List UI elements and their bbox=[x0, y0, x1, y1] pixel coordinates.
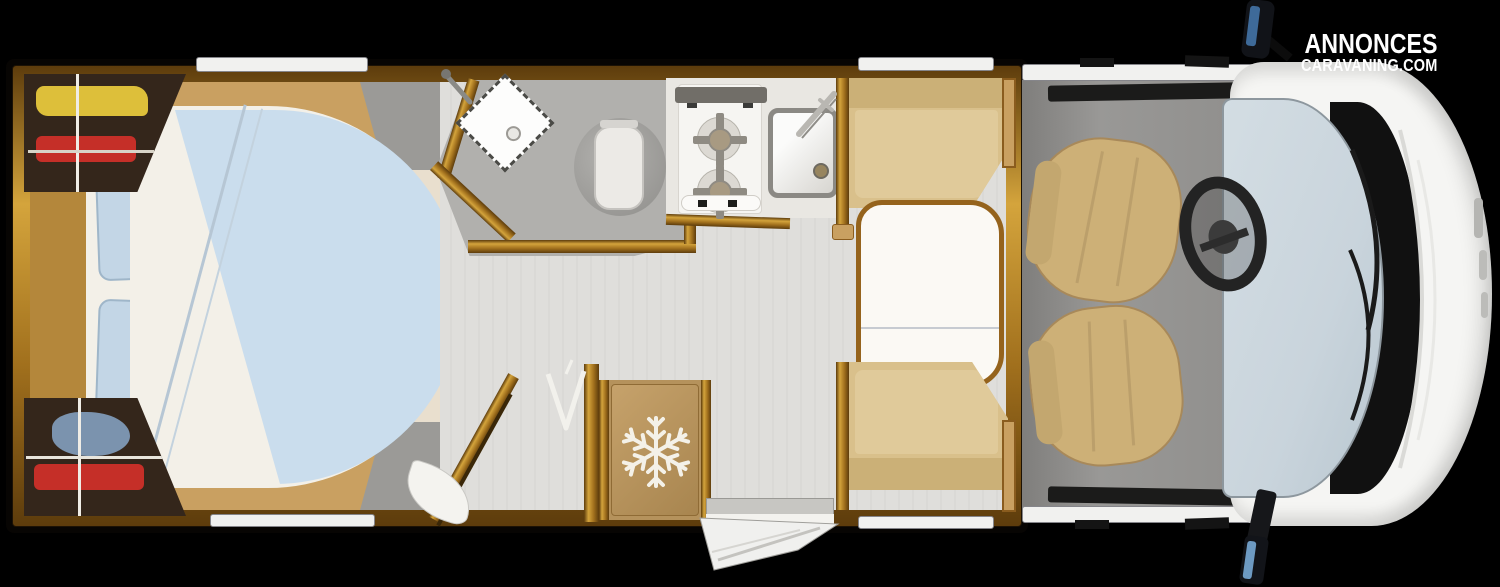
toilet-bowl bbox=[574, 118, 666, 216]
dinette-bench-top bbox=[845, 78, 1008, 208]
fridge-door-panel bbox=[611, 384, 699, 516]
hanging-clothes-yellow bbox=[36, 86, 148, 116]
bench-backrest-bottom bbox=[845, 458, 1008, 490]
window-top-rear bbox=[196, 57, 368, 72]
roof-bracket-bottom-1 bbox=[1075, 520, 1109, 529]
burner-cap bbox=[708, 128, 732, 152]
bench-arm-foot bbox=[832, 224, 854, 240]
side-mirror-bottom bbox=[1236, 486, 1296, 587]
sink-drain bbox=[813, 163, 829, 179]
roof-bracket-top-1 bbox=[1080, 58, 1114, 67]
window-top-dinette bbox=[858, 57, 994, 71]
roof-bracket-bottom-2 bbox=[1185, 517, 1229, 530]
table-extension-seam bbox=[861, 327, 999, 329]
window-bottom-rear bbox=[210, 514, 375, 527]
fridge bbox=[599, 380, 711, 520]
site-watermark-logo: ANNONCES CARAVANING.COM bbox=[1301, 30, 1438, 74]
hanger-bar-2 bbox=[26, 456, 166, 459]
hanger-rail bbox=[76, 74, 79, 192]
dinette-bench-bottom bbox=[845, 362, 1008, 490]
hanging-clothes-blue bbox=[52, 412, 130, 456]
hob-foot-right bbox=[743, 103, 753, 108]
toilet-hinge bbox=[600, 120, 638, 128]
entry-sill bbox=[706, 514, 834, 524]
bench-armrest-left-top bbox=[836, 78, 849, 228]
basin-drain bbox=[503, 123, 524, 144]
kitchen-sink bbox=[768, 108, 838, 198]
logo-line-2: CARAVANING.COM bbox=[1301, 57, 1438, 74]
bench-seatpad-top bbox=[855, 110, 998, 198]
front-grille-slot-1 bbox=[1474, 198, 1483, 238]
hob-knob-left bbox=[698, 200, 707, 207]
driver-seat bbox=[1019, 129, 1190, 310]
fridge-rail-left bbox=[599, 380, 609, 520]
roof-bracket-top-2 bbox=[1185, 55, 1229, 68]
hob-back-bar bbox=[675, 87, 767, 103]
bench-armrest-right-bottom bbox=[1002, 420, 1016, 512]
toilet-lid bbox=[594, 126, 644, 210]
passenger-seat bbox=[1022, 298, 1190, 473]
bench-seatpad-bottom bbox=[855, 370, 998, 454]
motorhome-floorplan-canvas: ANNONCES CARAVANING.COM bbox=[0, 0, 1500, 587]
logo-line-1: ANNONCES bbox=[1301, 30, 1438, 57]
fridge-partition-wall bbox=[584, 364, 599, 522]
hanging-clothes-red bbox=[36, 136, 136, 162]
front-grille-slot-3 bbox=[1481, 292, 1488, 318]
bathroom-wall-bottom bbox=[468, 240, 696, 253]
hob-foot-left bbox=[687, 103, 697, 108]
hanger-bar bbox=[28, 150, 154, 153]
hanging-clothes-red-2 bbox=[34, 464, 144, 490]
dinette-table bbox=[856, 200, 1004, 388]
gas-hob bbox=[678, 84, 762, 214]
cab-door-rail-top bbox=[1048, 82, 1238, 101]
bench-backrest-top bbox=[845, 78, 1008, 108]
hob-control-bar bbox=[681, 195, 761, 211]
burner-rear bbox=[697, 117, 741, 161]
window-bottom-dinette bbox=[858, 516, 994, 529]
cab-door-rail-bottom bbox=[1048, 486, 1238, 505]
side-mirror-top bbox=[1240, 0, 1300, 80]
front-grille-slot-2 bbox=[1479, 250, 1487, 280]
bench-armrest-right-top bbox=[1002, 78, 1016, 168]
bench-armrest-left-bottom bbox=[836, 362, 849, 510]
hob-knob-right bbox=[728, 200, 737, 207]
